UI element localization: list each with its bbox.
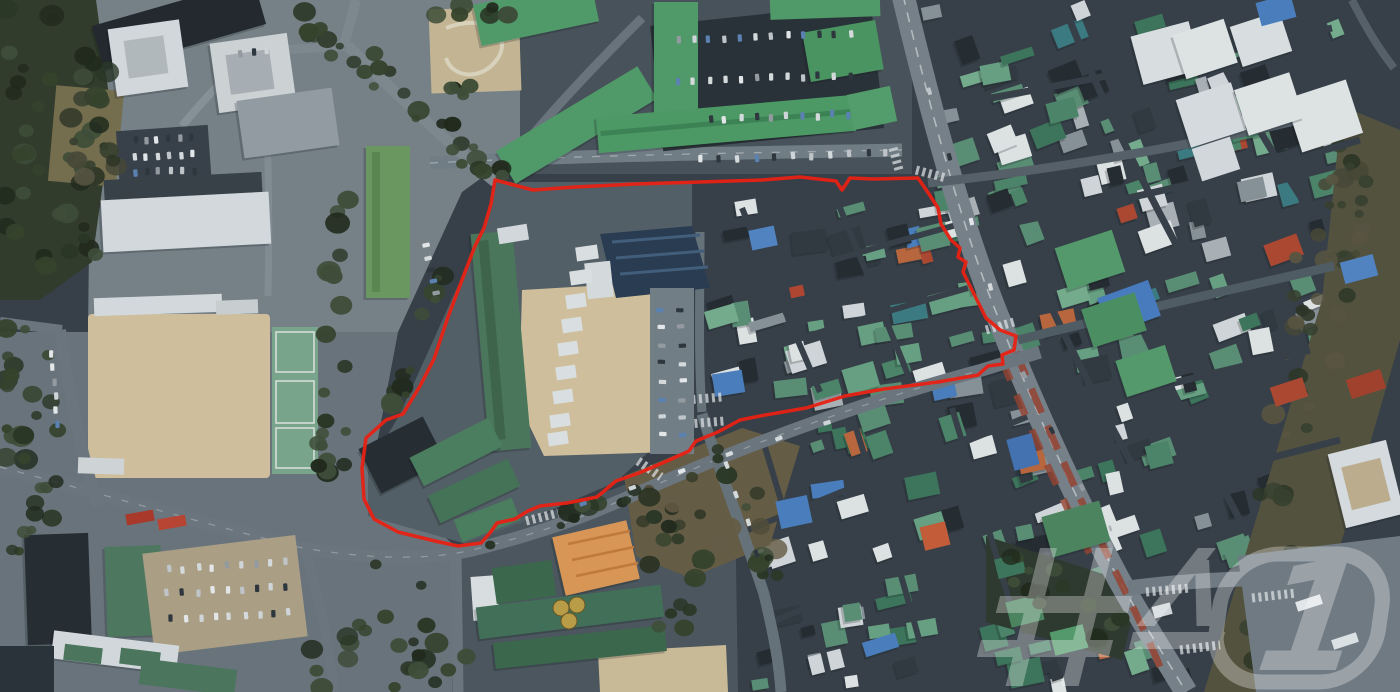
screenshot-root: 1	[0, 0, 1400, 692]
aerial-photograph: 1	[0, 0, 1400, 692]
watermark-bar	[996, 596, 1132, 613]
watermark-bar	[977, 640, 1113, 657]
photo-tint	[0, 0, 1400, 692]
